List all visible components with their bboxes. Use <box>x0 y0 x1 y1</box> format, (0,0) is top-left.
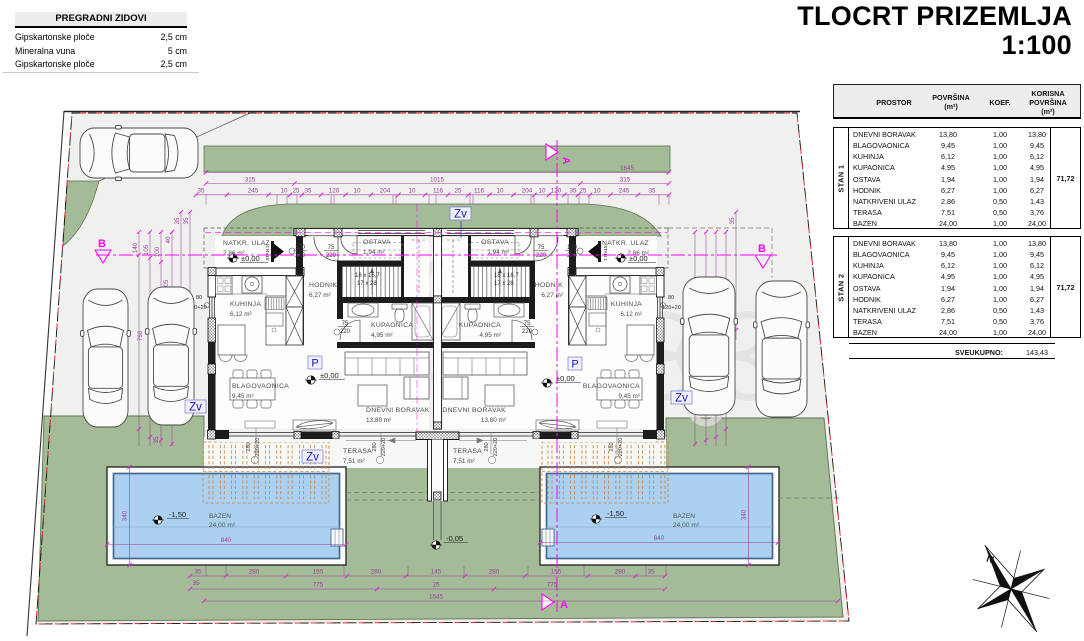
svg-text:220+20: 220+20 <box>255 438 261 457</box>
svg-text:18 x 16,7: 18 x 16,7 <box>494 273 519 279</box>
svg-text:25: 25 <box>454 188 462 195</box>
svg-text:35: 35 <box>192 580 200 587</box>
svg-text:280: 280 <box>371 569 382 576</box>
svg-text:280: 280 <box>484 442 490 451</box>
svg-text:KUHINJA: KUHINJA <box>611 301 642 308</box>
svg-text:OSTAVA: OSTAVA <box>481 239 509 246</box>
svg-text:10: 10 <box>538 188 546 195</box>
svg-text:220: 220 <box>567 253 578 259</box>
svg-text:HODNIK: HODNIK <box>535 282 563 289</box>
svg-text:340: 340 <box>122 510 129 521</box>
svg-text:10: 10 <box>353 188 361 195</box>
svg-text:245: 245 <box>619 188 630 195</box>
svg-text:STAN 1: STAN 1 <box>603 245 608 261</box>
svg-text:116: 116 <box>474 188 485 195</box>
svg-text:100: 100 <box>154 246 161 257</box>
svg-text:4,95 m²: 4,95 m² <box>371 332 393 339</box>
svg-text:1015: 1015 <box>430 176 445 183</box>
svg-text:840: 840 <box>654 535 665 542</box>
svg-text:BAZEN: BAZEN <box>209 513 231 520</box>
svg-text:4,95 m²: 4,95 m² <box>479 332 501 339</box>
svg-text:35: 35 <box>197 188 205 195</box>
svg-text:BAZEN: BAZEN <box>673 513 695 520</box>
svg-text:340: 340 <box>741 509 748 520</box>
svg-text:140: 140 <box>132 242 139 253</box>
svg-text:KUPAONICA: KUPAONICA <box>371 322 413 329</box>
svg-text:B: B <box>98 238 106 250</box>
svg-text:105: 105 <box>143 244 150 255</box>
svg-text:35: 35 <box>729 217 736 225</box>
svg-text:25: 25 <box>292 188 300 195</box>
svg-text:P: P <box>571 359 578 371</box>
svg-text:35: 35 <box>304 188 312 195</box>
svg-text:80: 80 <box>668 295 674 301</box>
svg-text:P: P <box>311 358 318 370</box>
svg-text:HODNIK: HODNIK <box>309 282 337 289</box>
svg-text:75: 75 <box>524 321 531 327</box>
svg-text:7,51 m²: 7,51 m² <box>453 458 475 465</box>
svg-text:7,51 m²: 7,51 m² <box>343 458 365 465</box>
svg-text:220: 220 <box>522 329 533 335</box>
svg-text:245: 245 <box>248 188 259 195</box>
svg-text:1645: 1645 <box>429 594 444 601</box>
svg-text:35: 35 <box>648 188 656 195</box>
svg-text:BLAGOVAONICA: BLAGOVAONICA <box>583 383 640 390</box>
svg-text:75: 75 <box>342 321 349 327</box>
svg-text:BLAGOVAONICA: BLAGOVAONICA <box>232 383 289 390</box>
svg-text:220: 220 <box>295 253 306 259</box>
svg-text:280: 280 <box>246 442 252 451</box>
svg-text:6,27 m²: 6,27 m² <box>309 292 331 299</box>
svg-text:80: 80 <box>196 295 202 301</box>
svg-text:25: 25 <box>579 188 587 195</box>
svg-text:Zv: Zv <box>454 209 467 221</box>
svg-text:35: 35 <box>153 436 160 444</box>
svg-text:OSTAVA: OSTAVA <box>363 239 391 246</box>
svg-text:13,80 m²: 13,80 m² <box>481 417 506 424</box>
svg-text:120+20: 120+20 <box>662 305 681 311</box>
svg-text:TERASA: TERASA <box>343 448 372 455</box>
svg-text:17 x 28: 17 x 28 <box>357 281 377 287</box>
svg-text:6,27 m²: 6,27 m² <box>541 292 563 299</box>
svg-text:10: 10 <box>280 188 288 195</box>
svg-text:1645: 1645 <box>620 165 635 172</box>
svg-text:155: 155 <box>313 569 324 576</box>
svg-text:DNEVNI BORAVAK: DNEVNI BORAVAK <box>442 407 506 414</box>
svg-text:204: 204 <box>380 188 391 195</box>
svg-text:9,45 m²: 9,45 m² <box>618 393 640 400</box>
svg-text:116: 116 <box>433 188 444 195</box>
svg-text:10: 10 <box>496 188 504 195</box>
svg-text:100: 100 <box>295 245 306 251</box>
svg-text:Zv: Zv <box>306 452 319 464</box>
svg-text:100: 100 <box>567 245 578 251</box>
svg-text:35: 35 <box>174 217 181 225</box>
svg-text:315: 315 <box>620 176 631 183</box>
svg-text:-1,50: -1,50 <box>607 509 624 518</box>
svg-text:10: 10 <box>408 188 416 195</box>
svg-text:10: 10 <box>593 188 601 195</box>
svg-text:KUHINJA: KUHINJA <box>230 301 261 308</box>
svg-text:-1,50: -1,50 <box>169 510 186 519</box>
svg-text:315: 315 <box>245 176 256 183</box>
svg-text:KUPAONICA: KUPAONICA <box>459 322 501 329</box>
svg-text:DNEVNI BORAVAK: DNEVNI BORAVAK <box>366 407 430 414</box>
svg-text:155: 155 <box>551 569 562 576</box>
svg-text:120: 120 <box>329 188 340 195</box>
svg-text:9,45 m²: 9,45 m² <box>232 393 254 400</box>
svg-text:280: 280 <box>489 569 500 576</box>
svg-text:24,00 m²: 24,00 m² <box>209 522 236 529</box>
svg-text:760: 760 <box>137 330 144 341</box>
svg-text:35: 35 <box>569 188 577 195</box>
svg-text:220+20: 220+20 <box>618 438 624 457</box>
svg-text:775: 775 <box>547 582 558 589</box>
svg-text:280: 280 <box>615 569 626 576</box>
svg-text:145: 145 <box>431 569 442 576</box>
svg-text:35: 35 <box>194 569 202 576</box>
svg-text:6,12 m²: 6,12 m² <box>230 311 252 318</box>
svg-text:280: 280 <box>249 569 260 576</box>
svg-text:280: 280 <box>609 442 615 451</box>
svg-text:-0,05: -0,05 <box>446 534 463 543</box>
svg-text:Zv: Zv <box>675 393 688 405</box>
svg-text:TERASA: TERASA <box>453 448 482 455</box>
svg-text:280: 280 <box>372 442 378 451</box>
svg-text:75: 75 <box>328 245 335 251</box>
svg-text:±0,00: ±0,00 <box>320 371 339 380</box>
svg-text:220+20: 220+20 <box>493 438 499 457</box>
svg-text:35: 35 <box>183 217 190 225</box>
svg-text:B: B <box>758 243 766 255</box>
svg-text:18 x 16,7: 18 x 16,7 <box>355 273 380 279</box>
svg-text:220: 220 <box>340 329 351 335</box>
svg-text:13,80 m²: 13,80 m² <box>366 417 391 424</box>
svg-text:Zv: Zv <box>189 402 202 414</box>
svg-text:220: 220 <box>536 253 547 259</box>
svg-text:STAN 2: STAN 2 <box>265 245 270 261</box>
svg-text:±0,00: ±0,00 <box>556 374 575 383</box>
svg-text:35: 35 <box>647 569 655 576</box>
svg-text:NATKR. ULAZ: NATKR. ULAZ <box>602 240 649 247</box>
svg-text:24,00 m²: 24,00 m² <box>673 522 700 529</box>
svg-text:120: 120 <box>551 188 562 195</box>
svg-text:204: 204 <box>522 188 533 195</box>
svg-text:25: 25 <box>432 582 440 589</box>
svg-text:6,12 m²: 6,12 m² <box>620 311 642 318</box>
svg-text:NATKR. ULAZ: NATKR. ULAZ <box>223 240 270 247</box>
svg-text:40: 40 <box>165 236 172 244</box>
svg-text:220: 220 <box>326 253 337 259</box>
svg-text:A: A <box>560 157 571 164</box>
svg-text:220+20: 220+20 <box>381 438 387 457</box>
svg-text:75: 75 <box>538 245 545 251</box>
svg-text:775: 775 <box>313 582 324 589</box>
svg-text:840: 840 <box>221 537 232 544</box>
svg-text:17 x 28: 17 x 28 <box>494 281 514 287</box>
